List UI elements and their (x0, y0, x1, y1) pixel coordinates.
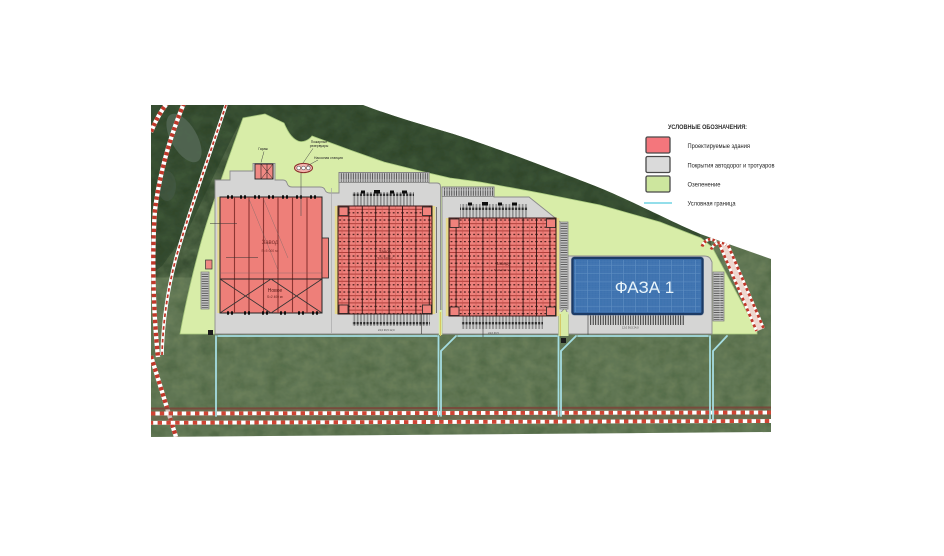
svg-text:S=2 400 м²: S=2 400 м² (267, 295, 283, 299)
svg-text:Завод: Завод (379, 249, 392, 254)
svg-text:24,0 36,5 12,0: 24,0 36,5 12,0 (378, 328, 395, 332)
svg-text:Условная граница: Условная граница (688, 201, 736, 208)
svg-text:резервуары: резервуары (310, 144, 329, 148)
svg-text:12,0 36,5 24,0: 12,0 36,5 24,0 (622, 326, 639, 330)
svg-text:S=11 000 м²: S=11 000 м² (494, 268, 511, 272)
svg-text:24,0 36,5: 24,0 36,5 (488, 331, 499, 335)
svg-text:Покрытия автодорог и тротуаров: Покрытия автодорог и тротуаров (688, 163, 776, 170)
svg-text:Завод: Завод (262, 240, 279, 246)
svg-text:Гараж: Гараж (258, 147, 268, 151)
svg-text:ФАЗА 1: ФАЗА 1 (615, 278, 674, 297)
svg-text:Новое: Новое (268, 288, 283, 294)
svg-text:Завод: Завод (496, 261, 509, 266)
svg-text:УСЛОВНЫЕ ОБОЗНАЧЕНИЯ:: УСЛОВНЫЕ ОБОЗНАЧЕНИЯ: (668, 124, 747, 131)
svg-text:Насосная станция: Насосная станция (314, 156, 343, 160)
svg-text:S=5 000 м²: S=5 000 м² (261, 249, 279, 253)
svg-text:Озеленение: Озеленение (688, 182, 721, 189)
svg-text:S=9 600 м²: S=9 600 м² (377, 256, 392, 260)
svg-text:Проектируемые здания: Проектируемые здания (688, 143, 751, 150)
